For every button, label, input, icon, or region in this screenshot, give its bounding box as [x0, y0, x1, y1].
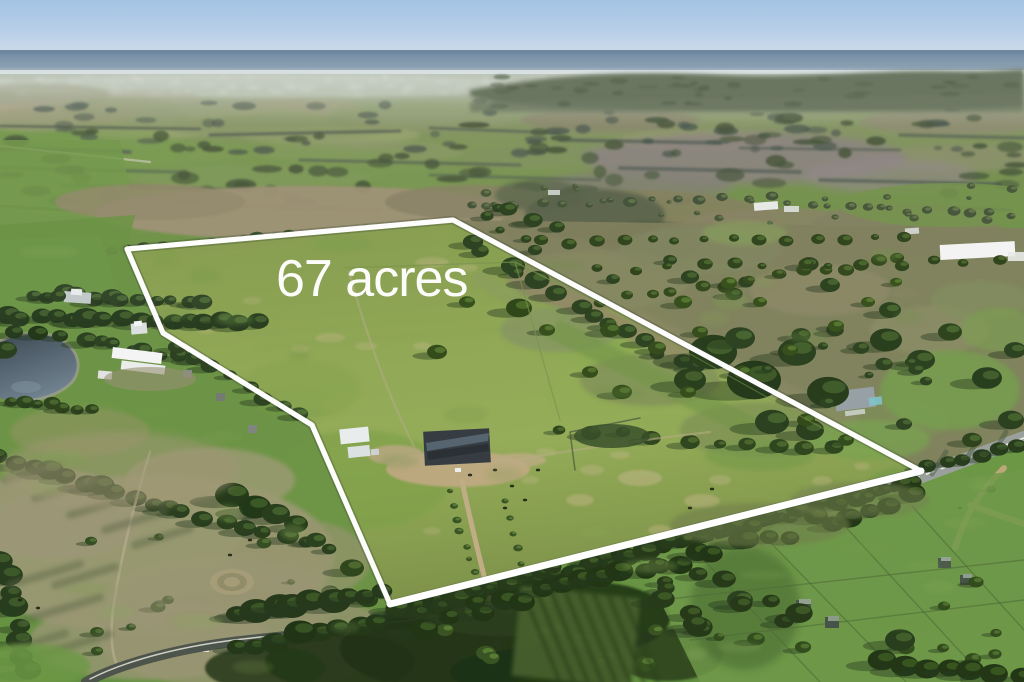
svg-text:67 acres: 67 acres [276, 250, 467, 308]
